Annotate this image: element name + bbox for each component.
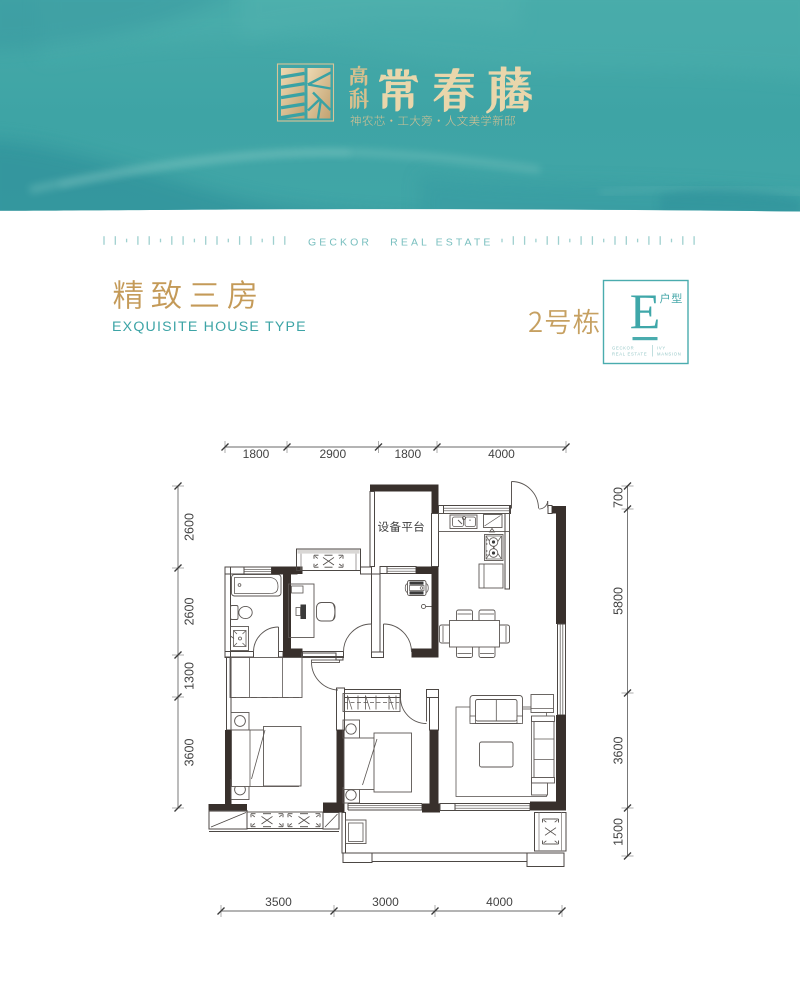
svg-text:2600: 2600 (183, 598, 197, 626)
svg-text:2600: 2600 (183, 513, 197, 541)
svg-text:3000: 3000 (372, 895, 399, 909)
svg-text:3600: 3600 (183, 739, 197, 767)
svg-text:1300: 1300 (183, 662, 197, 690)
svg-text:IVY: IVY (657, 346, 666, 351)
svg-text:GECKOR: GECKOR (612, 346, 634, 351)
svg-text:5800: 5800 (612, 587, 626, 615)
svg-text:MANSION: MANSION (657, 352, 681, 357)
svg-text:EXQUISITE HOUSE TYPE: EXQUISITE HOUSE TYPE (112, 319, 307, 335)
svg-text:4000: 4000 (486, 895, 513, 909)
svg-text:4000: 4000 (488, 447, 515, 461)
svg-text:3600: 3600 (612, 737, 626, 765)
svg-text:2900: 2900 (319, 447, 346, 461)
svg-text:GECKOR REAL ESTATE: GECKOR REAL ESTATE (308, 237, 494, 249)
svg-text:700: 700 (612, 487, 626, 508)
svg-text:1800: 1800 (243, 447, 270, 461)
svg-text:REAL ESTATE: REAL ESTATE (612, 352, 647, 357)
svg-text:E: E (630, 283, 661, 339)
svg-text:1800: 1800 (394, 447, 421, 461)
svg-text:1500: 1500 (612, 818, 626, 846)
svg-text:3500: 3500 (265, 895, 292, 909)
